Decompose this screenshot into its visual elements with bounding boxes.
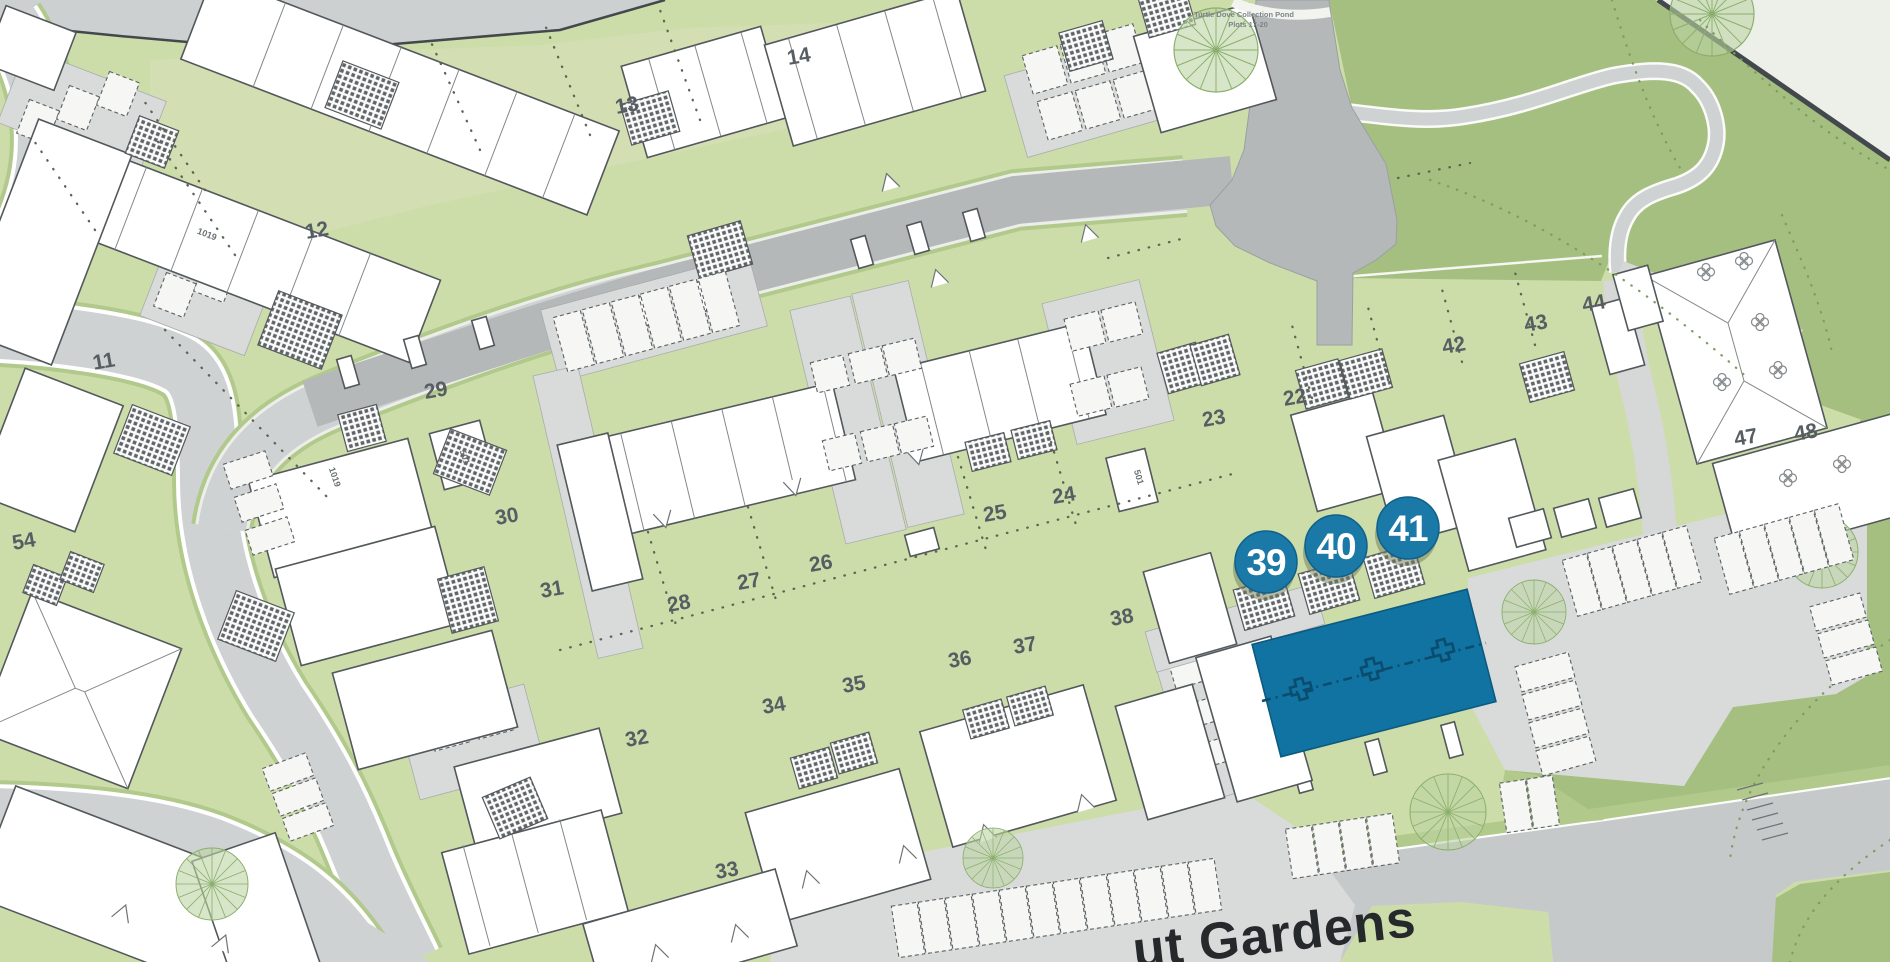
svg-text:12: 12: [303, 217, 330, 244]
svg-text:47: 47: [1732, 424, 1759, 451]
svg-text:28: 28: [665, 590, 692, 617]
svg-text:13: 13: [613, 92, 640, 119]
svg-text:36: 36: [946, 646, 973, 673]
svg-text:48: 48: [1792, 419, 1819, 446]
svg-text:Plots 17-20: Plots 17-20: [1228, 20, 1268, 29]
svg-text:26: 26: [807, 550, 834, 577]
svg-text:29: 29: [422, 377, 449, 404]
svg-text:22: 22: [1281, 384, 1308, 411]
svg-text:43: 43: [1522, 310, 1549, 337]
svg-text:39: 39: [1246, 542, 1286, 583]
svg-text:14: 14: [785, 43, 812, 70]
svg-text:37: 37: [1011, 632, 1038, 659]
svg-text:31: 31: [538, 576, 565, 603]
svg-text:42: 42: [1440, 332, 1467, 359]
svg-text:24: 24: [1050, 482, 1077, 509]
svg-text:38: 38: [1108, 604, 1135, 631]
svg-text:11: 11: [91, 348, 117, 375]
svg-text:25: 25: [981, 500, 1008, 527]
svg-text:44: 44: [1580, 290, 1607, 317]
svg-text:54: 54: [10, 528, 37, 555]
svg-text:34: 34: [760, 692, 787, 719]
svg-text:32: 32: [623, 725, 650, 752]
svg-text:33: 33: [713, 857, 740, 884]
svg-text:27: 27: [735, 568, 762, 595]
svg-text:30: 30: [493, 503, 520, 530]
svg-text:40: 40: [1316, 526, 1356, 567]
svg-text:41: 41: [1388, 508, 1428, 549]
svg-text:35: 35: [840, 671, 867, 698]
svg-text:23: 23: [1200, 405, 1227, 432]
svg-text:Turtle Dove Collection Pond: Turtle Dove Collection Pond: [1194, 10, 1294, 19]
